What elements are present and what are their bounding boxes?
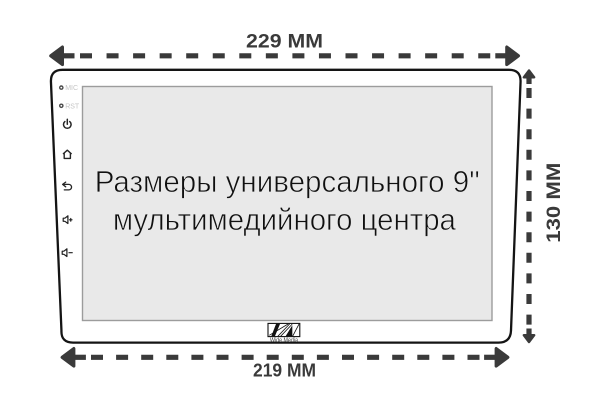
svg-text:229 ММ: 229 ММ (246, 31, 323, 53)
svg-text:RST: RST (65, 103, 80, 110)
svg-text:Размеры универсального 9": Размеры универсального 9" (95, 165, 480, 199)
svg-text:мультимедийного центра: мультимедийного центра (113, 203, 456, 237)
svg-text:130 ММ: 130 ММ (544, 163, 565, 243)
svg-text:219 ММ: 219 ММ (253, 361, 316, 381)
svg-text:MIC: MIC (65, 85, 78, 92)
svg-text:Wide Media: Wide Media (270, 338, 299, 344)
